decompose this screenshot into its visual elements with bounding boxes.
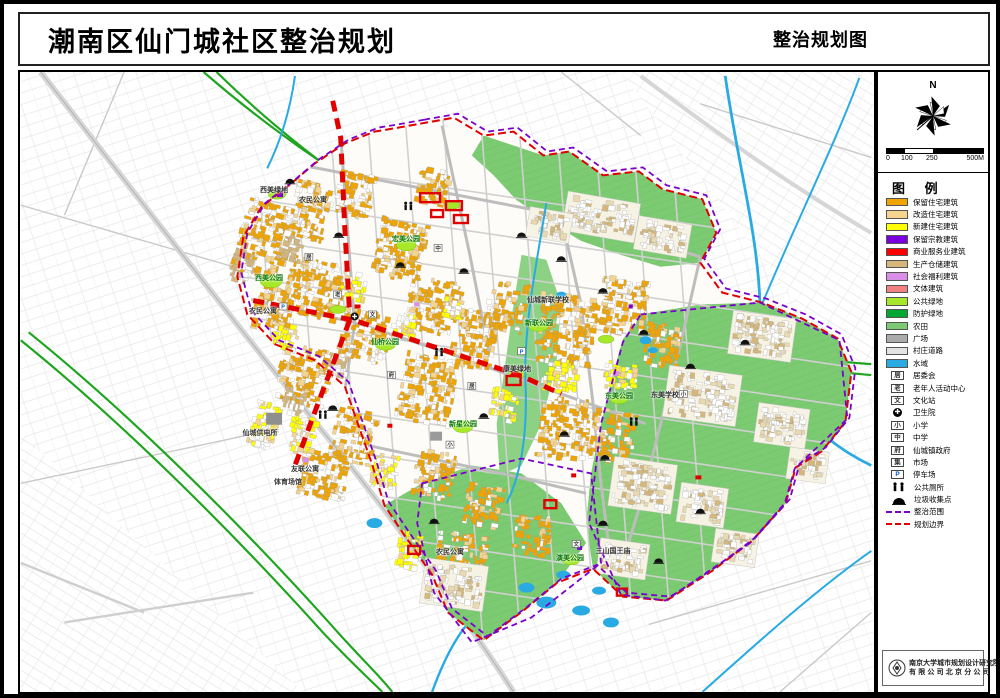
page-title: 潮南区仙门城社区整治规划 [48, 20, 396, 59]
garbage-dome-icon [891, 495, 907, 505]
svg-text:老: 老 [334, 291, 341, 299]
svg-text:居: 居 [469, 382, 475, 390]
legend-item: 文体建筑 [886, 283, 986, 295]
legend-item: 保留住宅建筑 [886, 196, 986, 208]
svg-text:文: 文 [370, 311, 376, 319]
legend-item-label: 公共绿地 [913, 296, 943, 307]
legend-item-label: 生产仓储建筑 [913, 259, 958, 270]
legend-swatch [886, 248, 908, 257]
老年人活动中心-icon: 老 [891, 384, 904, 393]
legend-item: 集市场 [886, 456, 986, 468]
legend-item-label: 垃圾收集点 [914, 494, 952, 505]
中学-icon: 中 [891, 433, 904, 442]
legend-item-label: 社会福利建筑 [913, 271, 958, 282]
svg-text:小: 小 [447, 441, 453, 449]
drawing-name: 整治规划图 [773, 26, 868, 52]
scale-ticks: 0 100 250 500M [886, 155, 984, 165]
facility-point-icon: 文 [369, 311, 377, 319]
facility-point-icon: 小 [446, 441, 454, 449]
legend-swatch [886, 272, 908, 281]
legend-item-label: 商业服务业建筑 [913, 246, 966, 257]
legend-item-label: 文化站 [913, 395, 936, 406]
facility-point-icon: 居 [305, 253, 313, 261]
legend-item-label: 小学 [913, 420, 928, 431]
legend-item: 公共厕所 [886, 481, 986, 493]
facility-point-icon: 老 [334, 291, 342, 299]
planning-map: PP府小小中居居老文文 [20, 72, 874, 692]
institute-logo [888, 659, 906, 677]
legend-item-label: 村庄道路 [913, 345, 943, 356]
legend-item: 整治范围 [886, 506, 986, 518]
facility-point-icon: 小 [680, 390, 688, 398]
legend-item: 居居委会 [886, 369, 986, 381]
legend-item-label: 居委会 [913, 370, 936, 381]
facility-point-icon: 居 [468, 382, 476, 390]
legend-item-label: 新建住宅建筑 [913, 221, 958, 232]
legend-panel: N 0 100 250 500M 图 例 保留住宅建筑改造住宅建筑新建住宅建筑保… [876, 70, 990, 694]
facility-point-icon: 府 [387, 371, 395, 379]
legend-swatch [886, 309, 908, 318]
legend-item: ✚卫生院 [886, 407, 986, 419]
legend-swatch [886, 260, 908, 269]
legend-swatch [886, 334, 908, 343]
legend-item: P停车场 [886, 469, 986, 481]
north-label: N [929, 80, 936, 91]
legend-item-label: 水域 [913, 358, 928, 369]
toilet-icon [891, 482, 907, 492]
legend-line-sample [886, 511, 910, 513]
legend-item-label: 卫生院 [913, 407, 936, 418]
legend-item-label: 保留住宅建筑 [913, 197, 958, 208]
legend-item-label: 停车场 [913, 469, 936, 480]
legend-item-label: 规划边界 [914, 519, 944, 530]
legend-item: 改造住宅建筑 [886, 208, 986, 220]
institute-name: 南京大学城市规划设计研究院 [909, 659, 1000, 668]
legend-item: 公共绿地 [886, 295, 986, 307]
legend-swatch [886, 223, 908, 232]
legend-item: 农田 [886, 320, 986, 332]
institute-branch: 有限公司北京分公司 [909, 668, 1000, 677]
legend-item: 小小学 [886, 419, 986, 431]
scale-bar: 0 100 250 500M [886, 148, 984, 170]
legend-item-label: 整治范围 [914, 506, 944, 517]
legend-swatch [886, 359, 908, 368]
facility-point-icon: P [518, 348, 526, 356]
legend-item-label: 中学 [913, 432, 928, 443]
legend-item: 生产仓储建筑 [886, 258, 986, 270]
legend-item: 社会福利建筑 [886, 270, 986, 282]
legend-swatch [886, 297, 908, 306]
居委会-icon: 居 [891, 371, 904, 380]
legend-swatch [886, 210, 908, 219]
planning-sheet: 潮南区仙门城社区整治规划 整治规划图 [0, 0, 1000, 698]
legend-item: 商业服务业建筑 [886, 246, 986, 258]
legend-item: 水域 [886, 357, 986, 369]
legend-item-label: 老年人活动中心 [913, 383, 966, 394]
legend-item-label: 农田 [913, 321, 928, 332]
legend-item-label: 市场 [913, 457, 928, 468]
legend-swatch [886, 198, 908, 207]
clinic-cross-icon: ✚ [893, 408, 902, 417]
小学-icon: 小 [891, 421, 904, 430]
svg-text:居: 居 [306, 253, 312, 261]
legend-item-label: 改造住宅建筑 [913, 209, 958, 220]
svg-text:府: 府 [389, 371, 395, 379]
legend-item-label: 广场 [913, 333, 928, 344]
svg-text:中: 中 [435, 244, 441, 252]
仙城镇政府-icon: 府 [891, 446, 904, 455]
legend-item: 防护绿地 [886, 308, 986, 320]
legend-item-label: 防护绿地 [913, 308, 943, 319]
legend-item-label: 文体建筑 [913, 283, 943, 294]
legend-list: 保留住宅建筑改造住宅建筑新建住宅建筑保留宗教建筑商业服务业建筑生产仓储建筑社会福… [886, 196, 986, 531]
facility-point-icon: 文 [572, 540, 580, 548]
svg-text:P: P [520, 349, 524, 355]
legend-title: 图 例 [892, 178, 946, 197]
facility-point-icon: P [279, 303, 287, 311]
停车场-icon: P [891, 470, 904, 479]
legend-item-label: 保留宗教建筑 [913, 234, 958, 245]
panel-divider [878, 172, 988, 173]
svg-text:P: P [281, 305, 285, 311]
legend-item: 村庄道路 [886, 345, 986, 357]
文化站-icon: 文 [891, 396, 904, 405]
facility-point-icon: 中 [434, 244, 442, 252]
compass: N [878, 76, 988, 148]
legend-item: 广场 [886, 332, 986, 344]
legend-swatch [886, 235, 908, 244]
svg-text:文: 文 [573, 540, 579, 548]
市场-icon: 集 [891, 458, 904, 467]
institute-box: 南京大学城市规划设计研究院 有限公司北京分公司 [882, 650, 984, 686]
legend-item: 文文化站 [886, 394, 986, 406]
legend-swatch [886, 322, 908, 331]
title-bar: 潮南区仙门城社区整治规划 整治规划图 [18, 12, 990, 66]
map-frame: PP府小小中居居老文文 西美绿地农民公寓宏美公园西美公园农民公寓仙桥公园仙城新联… [18, 70, 876, 694]
legend-item: 中中学 [886, 431, 986, 443]
legend-item: 府仙城镇政府 [886, 444, 986, 456]
legend-item-label: 公共厕所 [914, 482, 944, 493]
legend-line-sample [886, 523, 910, 525]
svg-text:小: 小 [681, 390, 687, 398]
legend-item: 垃圾收集点 [886, 493, 986, 505]
legend-item: 老老年人活动中心 [886, 382, 986, 394]
legend-item: 规划边界 [886, 518, 986, 530]
legend-swatch [886, 285, 908, 294]
clinic-point-icon [351, 312, 359, 320]
legend-item: 新建住宅建筑 [886, 221, 986, 233]
legend-swatch [886, 347, 908, 356]
legend-item: 保留宗教建筑 [886, 233, 986, 245]
legend-item-label: 仙城镇政府 [913, 445, 951, 456]
